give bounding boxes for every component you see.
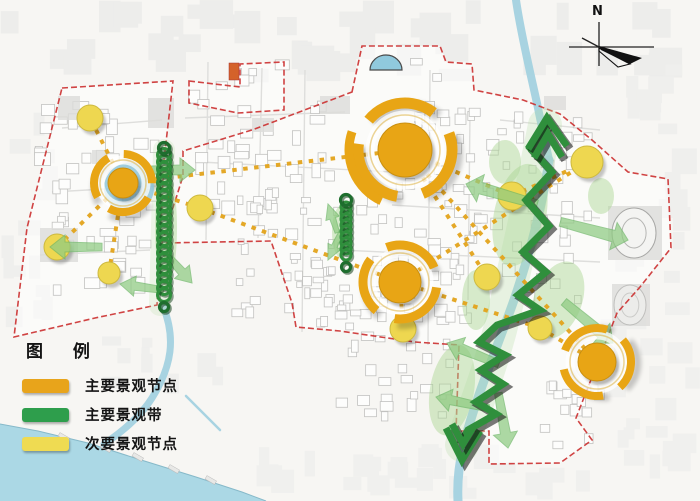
park-green-patch [588,178,614,214]
node-core [578,343,616,381]
city-block [1,235,13,258]
landscape-structure-map: 图 例 主要景观节点 主要景观带 次要景观节点 N [0,0,700,501]
city-block [343,477,361,490]
building-footprint [343,295,352,303]
building-footprint [195,152,207,162]
building-footprint [308,218,321,225]
city-block [271,470,294,493]
building-footprint [128,236,137,246]
city-block [259,447,269,468]
building-footprint [365,409,377,417]
legend-panel: 图 例 主要景观节点 主要景观带 次要景观节点 [22,337,178,462]
building-footprint [456,265,464,275]
city-block [576,470,590,491]
node-core [108,168,138,198]
building-footprint [292,131,300,146]
city-block [411,18,425,37]
building-footprint [379,378,391,386]
stadium-oval [614,285,646,325]
city-block [1,11,19,33]
building-footprint [410,58,422,65]
building-footprint [266,200,271,210]
building-footprint [250,297,260,305]
building-footprint [235,151,249,158]
city-block [305,451,315,477]
building-footprint [358,395,370,405]
building-footprint [255,154,267,165]
building-footprint [351,340,358,352]
city-block [685,367,700,388]
building-footprint [126,246,136,253]
building-footprint [563,389,571,397]
city-block [390,457,407,475]
city-block [663,441,681,453]
building-footprint [134,138,148,149]
building-footprint [67,164,79,174]
north-arrow: N [566,6,658,70]
legend-item-label: 主要景观节点 [85,375,178,396]
building-footprint [335,311,347,319]
building-footprint [290,175,302,183]
city-block [526,472,546,495]
building-footprint [455,114,466,124]
secondary-node-swatch [22,437,69,451]
building-footprint [561,405,569,414]
building-footprint [241,244,248,255]
building-footprint [246,307,254,318]
secondary-landscape-node [98,262,120,284]
building-footprint [549,381,556,390]
building-footprint [517,132,524,143]
city-block [672,148,697,174]
building-footprint [411,392,418,399]
building-footprint [469,108,480,116]
building-footprint [340,285,350,291]
city-block [277,17,297,35]
city-block [658,124,677,135]
building-footprint [257,205,263,213]
building-footprint [236,279,243,286]
building-footprint [300,208,306,214]
city-block [234,11,260,43]
building-footprint [584,211,592,221]
building-footprint [325,171,335,181]
building-footprint [337,305,345,310]
building-footprint [249,69,257,76]
city-block [640,338,662,355]
legend-item-main-belt: 主要景观带 [22,404,178,425]
building-footprint [312,164,320,178]
city-block [200,0,233,29]
building-footprint [211,116,225,126]
city-block [667,342,692,363]
building-footprint [82,153,91,163]
building-footprint [582,408,591,417]
main-node-swatch [22,379,69,393]
building-footprint [42,104,55,115]
building-footprint [228,141,235,153]
building-footprint [222,201,235,215]
city-block [113,2,138,28]
building-footprint [303,276,312,285]
city-block [673,232,685,250]
city-block [339,11,364,26]
building-footprint [346,323,354,330]
building-footprint [139,240,151,248]
city-block [370,475,389,495]
building-footprint [441,272,452,285]
building-footprint [301,197,310,202]
city-block [395,478,419,488]
building-footprint [311,289,322,298]
secondary-landscape-node [474,264,500,290]
building-footprint [573,135,584,142]
city-block [665,302,690,315]
building-footprint [40,123,51,134]
building-footprint [84,278,99,289]
open-space-patch [148,98,174,128]
building-footprint [395,218,402,228]
building-footprint [446,311,455,322]
building-footprint [453,185,464,192]
building-footprint [321,316,328,326]
landmark-building [229,63,239,80]
city-block [637,89,662,103]
building-footprint [475,215,488,223]
building-footprint [312,260,323,268]
building-footprint [305,288,310,299]
building-footprint [398,364,407,373]
city-block [646,426,668,438]
city-block [466,0,481,24]
building-footprint [357,206,367,215]
city-block [624,450,644,466]
building-footprint [59,179,70,189]
building-footprint [290,254,300,260]
secondary-landscape-node [77,105,103,131]
building-footprint [295,271,302,280]
building-footprint [562,202,573,214]
legend-title: 图 例 [26,337,178,362]
building-footprint [380,402,393,412]
city-block [433,459,446,479]
building-footprint [53,285,61,295]
building-footprint [401,376,413,383]
building-footprint [351,310,361,316]
building-footprint [272,188,278,198]
building-footprint [381,412,387,421]
building-footprint [275,60,289,70]
building-footprint [100,229,116,237]
building-footprint [428,239,440,245]
city-block [417,468,433,491]
building-footprint [268,150,281,160]
building-footprint [247,269,254,276]
city-block [530,36,556,65]
building-footprint [297,282,302,288]
building-footprint [515,112,523,123]
building-footprint [415,229,427,237]
building-footprint [218,156,230,168]
north-arrow-icon [566,18,658,70]
city-block [148,33,173,60]
building-footprint [433,74,442,82]
legend-item-label: 次要景观节点 [85,433,178,454]
building-footprint [237,196,243,204]
building-footprint [218,182,225,194]
building-footprint [423,353,432,363]
secondary-landscape-node [187,195,213,221]
building-footprint [232,309,243,317]
city-block [673,207,691,231]
city-block [67,39,95,59]
building-footprint [328,267,335,275]
building-footprint [553,441,563,449]
city-block [640,107,661,120]
city-block [10,139,31,154]
city-block [649,366,665,384]
legend-item-label: 主要景观带 [85,404,163,425]
node-core [379,261,421,303]
building-footprint [310,115,325,124]
city-block [664,271,680,283]
city-block [353,454,373,476]
building-footprint [336,398,347,407]
city-block [212,367,223,386]
building-footprint [313,277,324,283]
city-block [301,46,334,62]
building-footprint [371,224,378,234]
secondary-landscape-node [571,146,603,178]
open-space-patch [544,96,566,110]
legend-item-main-node: 主要景观节点 [22,375,178,396]
node-core [378,123,432,177]
city-block [3,256,14,278]
city-block [626,418,640,429]
park-green-patch [489,140,521,184]
building-footprint [466,154,474,162]
building-footprint [540,424,549,432]
city-block [655,398,676,420]
building-footprint [440,117,449,126]
city-block [665,65,682,76]
building-footprint [407,398,416,411]
building-footprint [498,129,507,135]
main-belt-swatch [22,408,69,422]
north-label: N [592,4,603,19]
building-footprint [131,268,142,276]
city-block [668,450,691,472]
legend-item-secondary-node: 次要景观节点 [22,433,178,454]
building-footprint [366,365,376,376]
building-footprint [324,297,332,307]
city-block [650,454,660,478]
building-footprint [379,215,387,224]
building-footprint [286,229,298,240]
